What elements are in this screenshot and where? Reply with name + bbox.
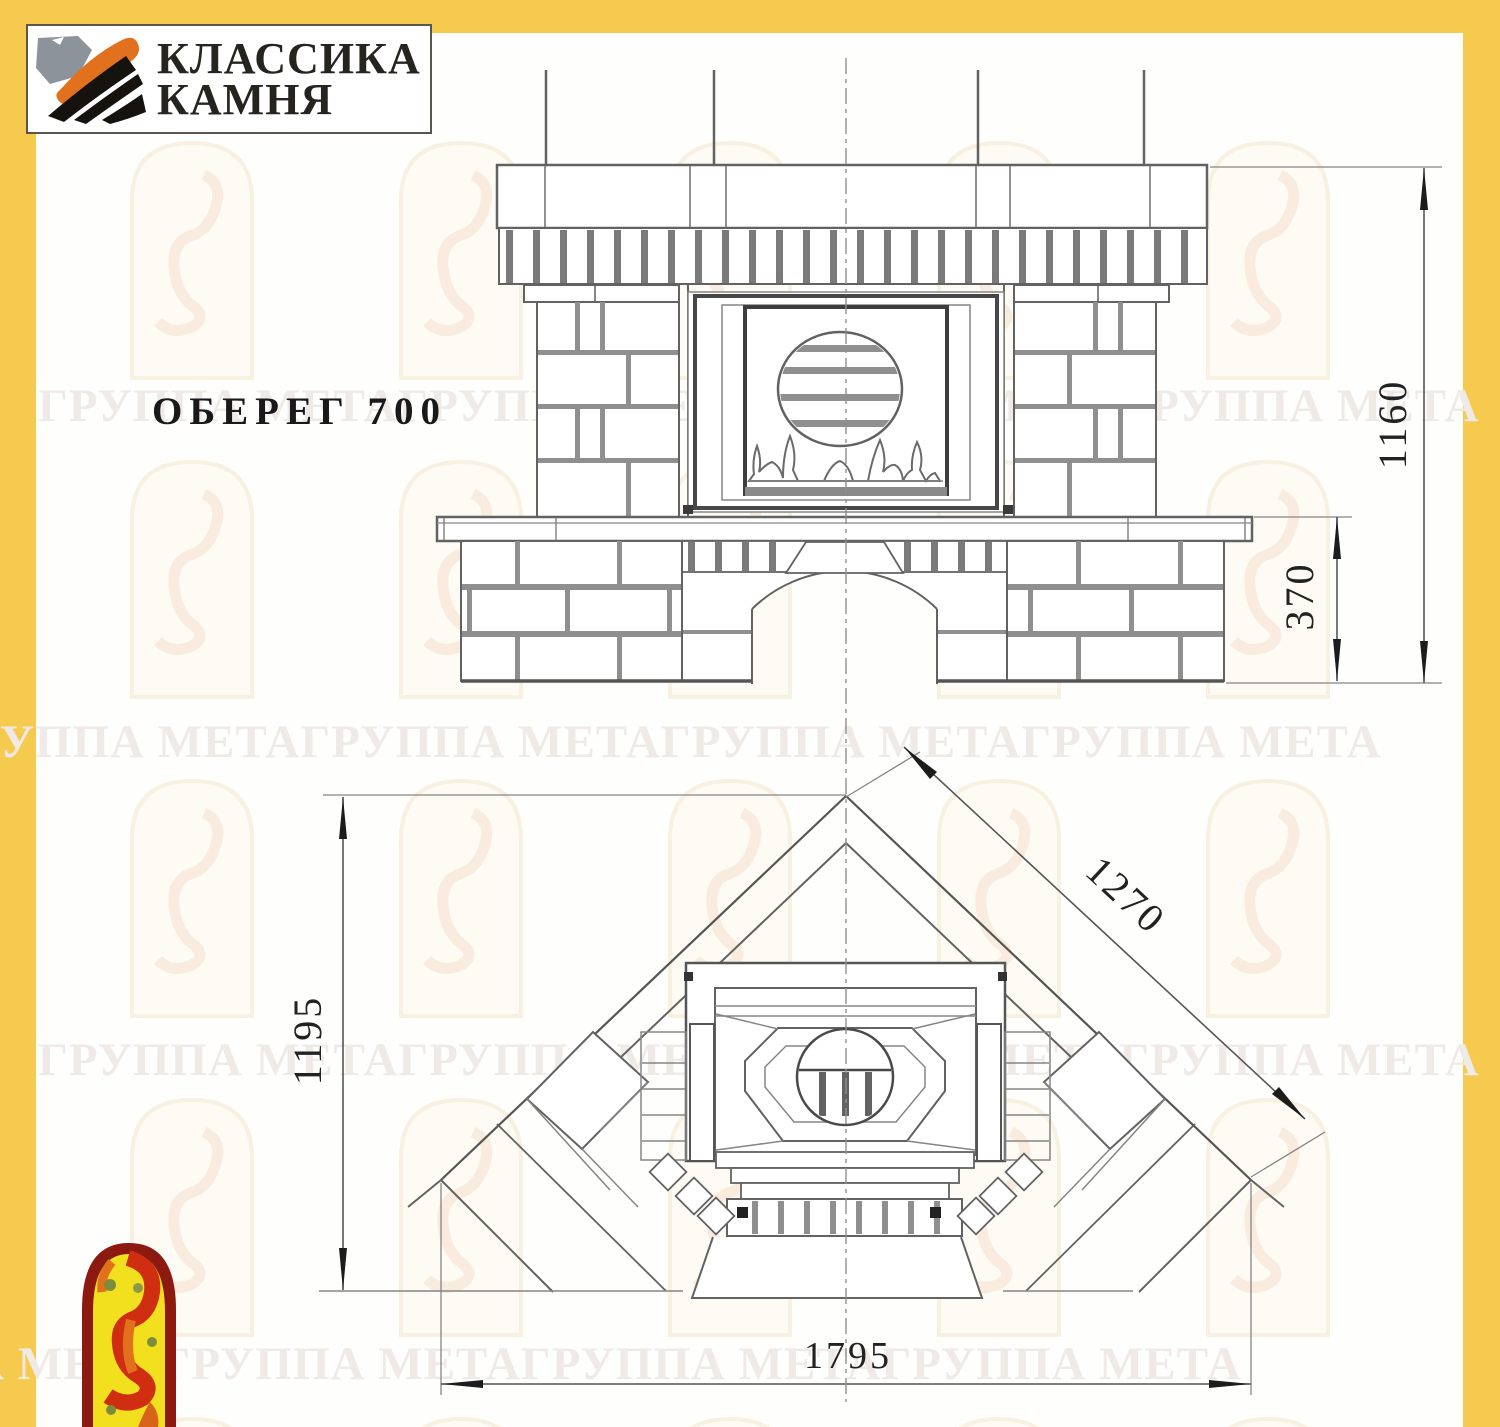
svg-text:1195: 1195 (285, 995, 330, 1086)
svg-text:1270: 1270 (1077, 847, 1175, 943)
svg-text:1795: 1795 (804, 1335, 892, 1377)
svg-text:1160: 1160 (1370, 379, 1415, 470)
svg-text:370: 370 (1277, 562, 1322, 631)
